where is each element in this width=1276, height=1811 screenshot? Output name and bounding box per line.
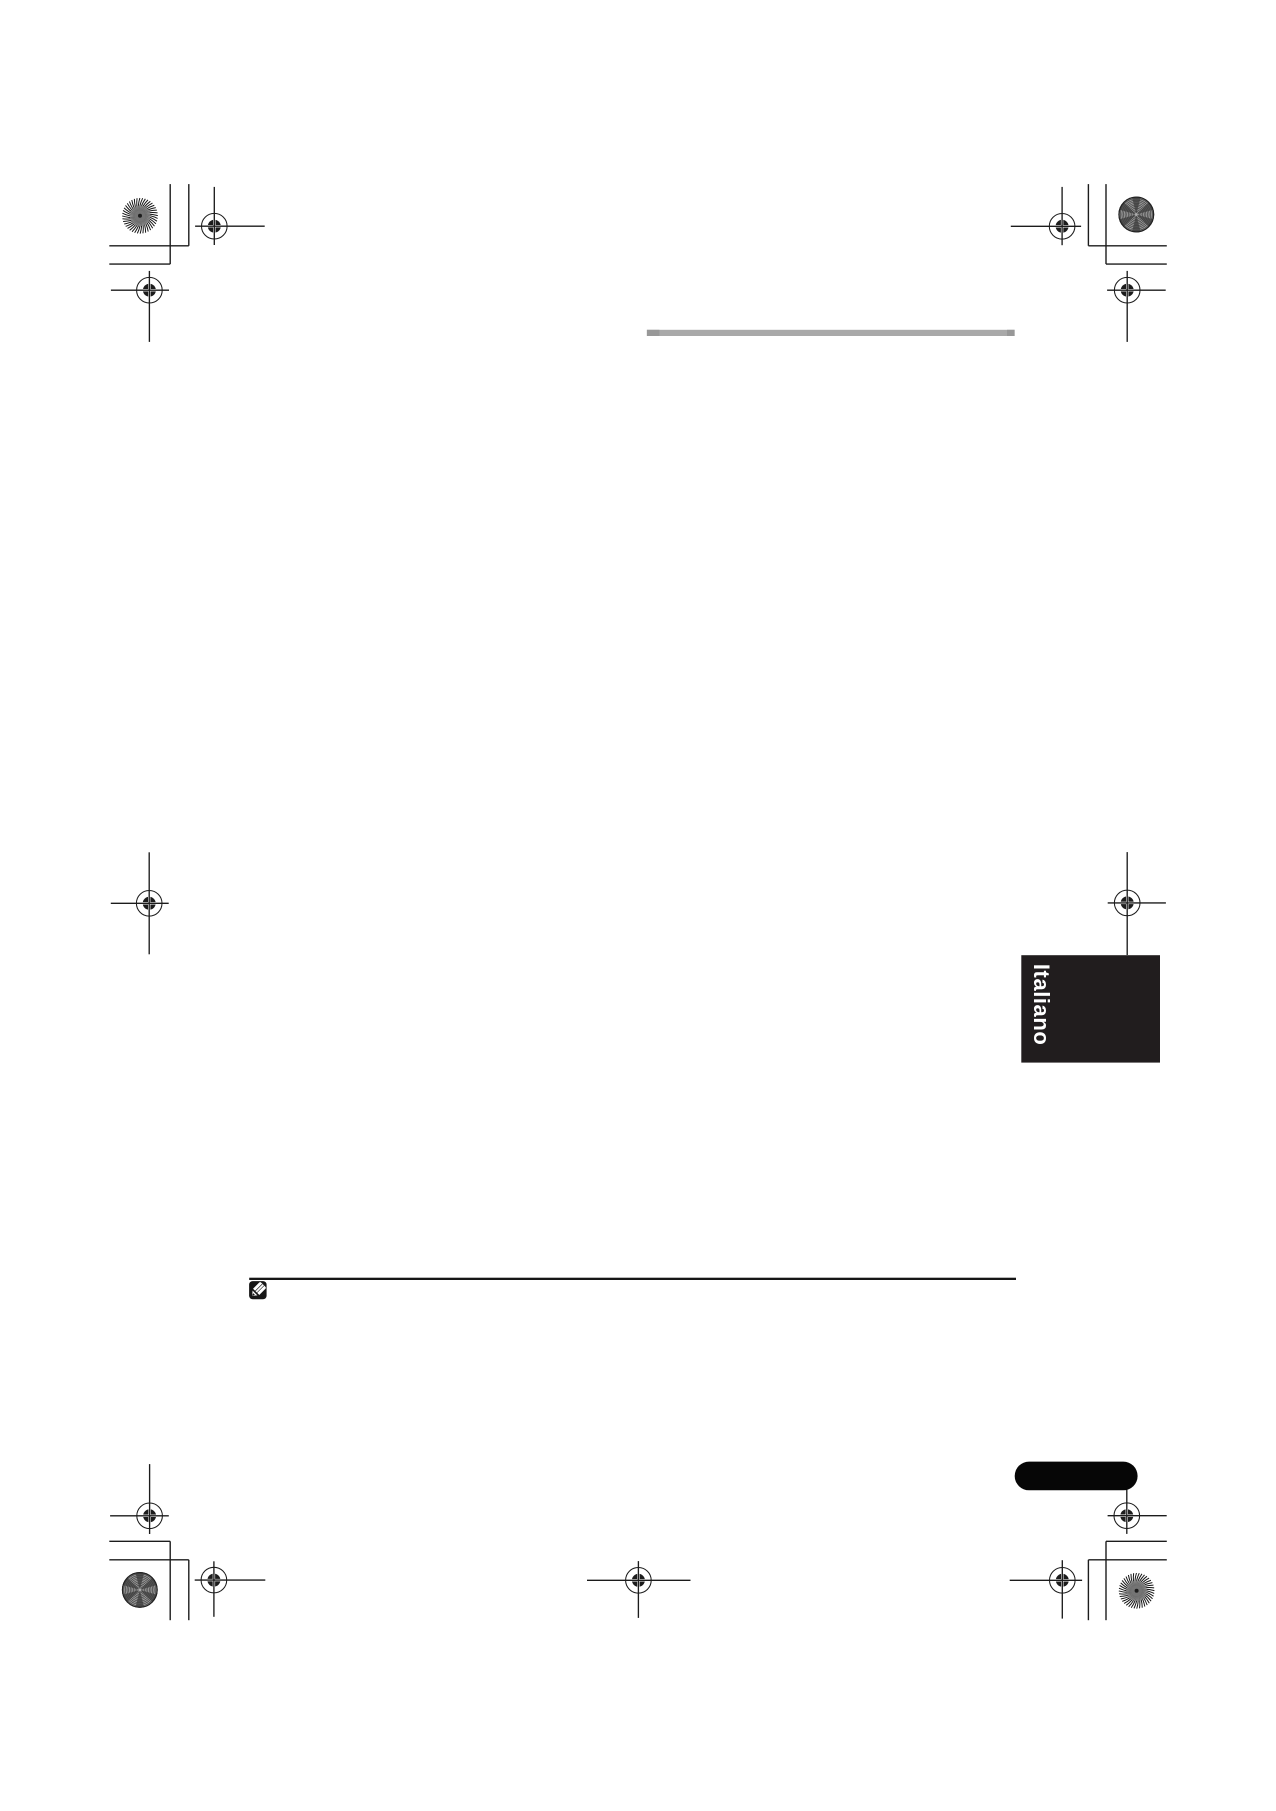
svg-text:Italiano: Italiano — [1029, 964, 1054, 1045]
